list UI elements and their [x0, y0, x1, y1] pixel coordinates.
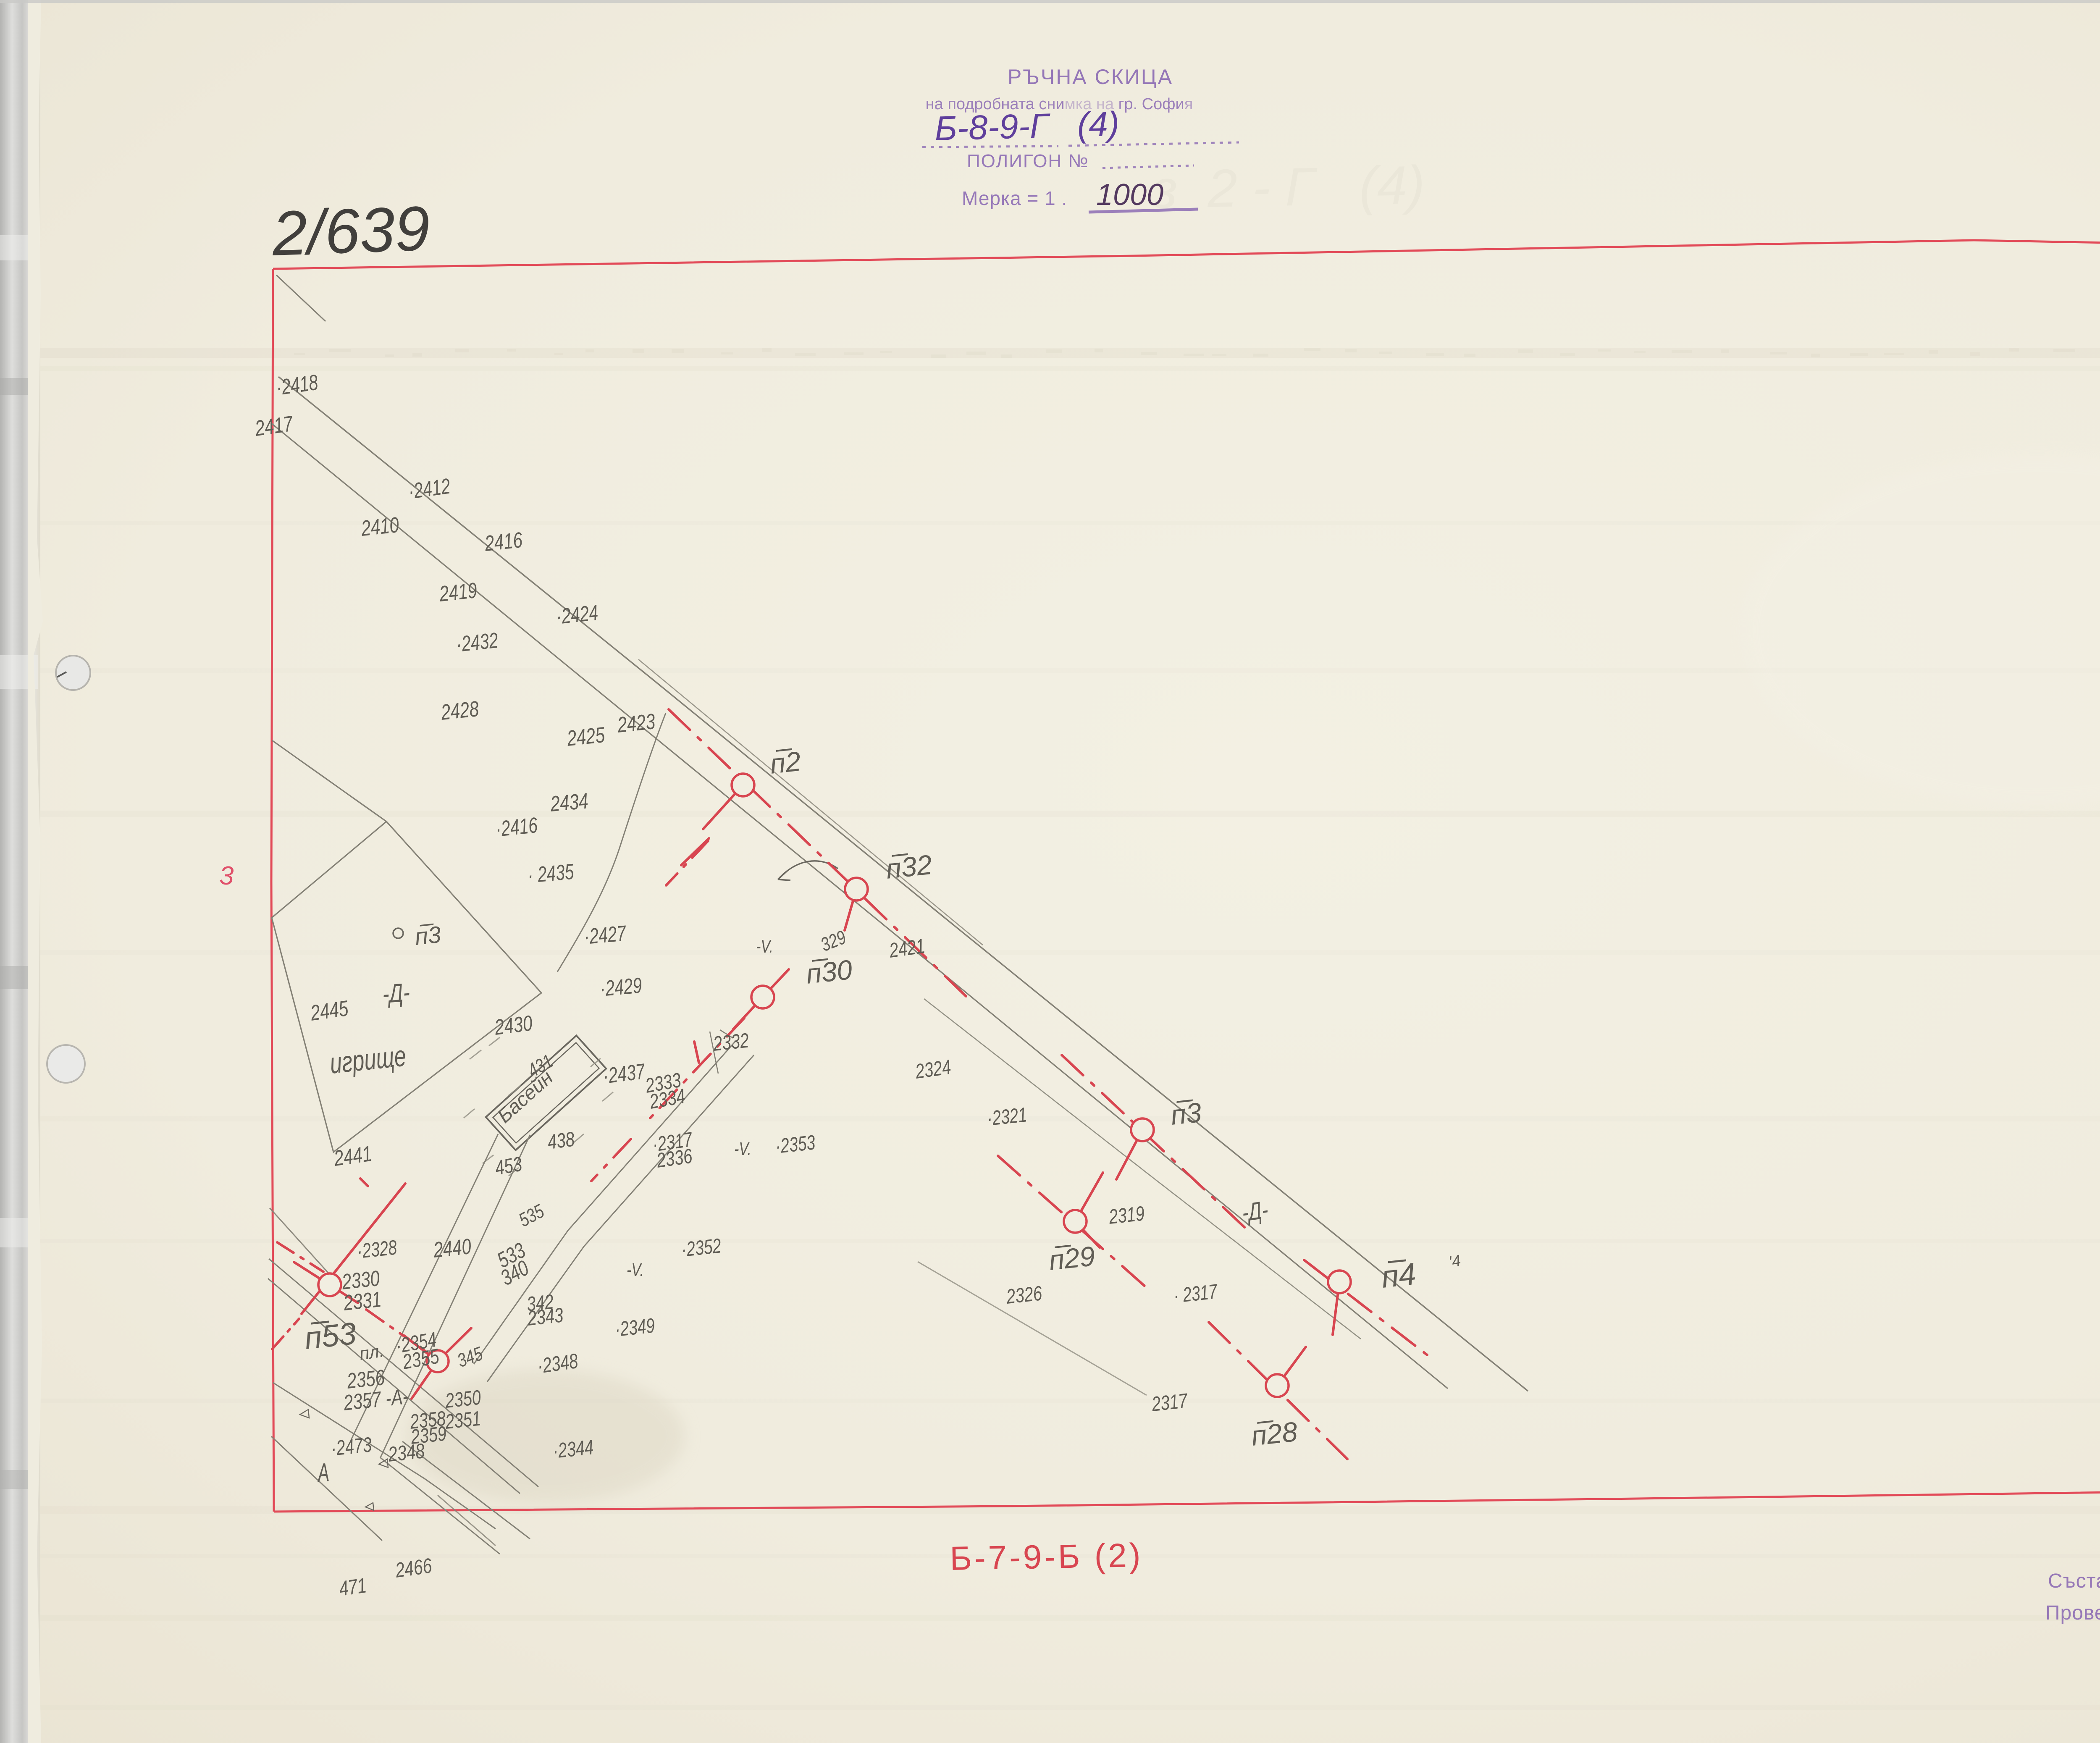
svg-text:·2427: ·2427: [583, 921, 627, 949]
svg-text:·2344: ·2344: [551, 1435, 594, 1463]
svg-text:·2416: ·2416: [494, 813, 539, 842]
svg-text:·2437: ·2437: [601, 1059, 647, 1089]
svg-text:Проверил:: Проверил:: [2045, 1602, 2100, 1624]
svg-text:Б-8-9-Г (4): Б-8-9-Г (4): [934, 105, 1120, 148]
svg-text:2/639: 2/639: [270, 193, 431, 269]
svg-text:2348: 2348: [387, 1439, 426, 1466]
svg-text:2326: 2326: [1005, 1282, 1044, 1308]
svg-text:2343: 2343: [526, 1304, 564, 1330]
svg-text:·2328: ·2328: [356, 1236, 398, 1263]
svg-text:453: 453: [493, 1153, 524, 1180]
svg-text:-V.: -V.: [756, 936, 773, 957]
svg-text:438: 438: [546, 1128, 576, 1154]
svg-text:2410: 2410: [360, 513, 400, 541]
svg-text:·2432: ·2432: [455, 628, 499, 657]
svg-text:·2321: ·2321: [986, 1103, 1028, 1130]
svg-text:3: 3: [219, 861, 234, 890]
svg-text:2419: 2419: [438, 578, 478, 606]
svg-text:·2352: ·2352: [680, 1234, 722, 1261]
svg-text:2416: 2416: [483, 528, 523, 556]
svg-text:п̅2: п̅2: [769, 745, 802, 780]
svg-text:2319: 2319: [1108, 1202, 1146, 1228]
svg-text:2428: 2428: [439, 697, 480, 725]
svg-text:·2473: ·2473: [330, 1433, 373, 1460]
svg-text:ПОЛИГОН №: ПОЛИГОН №: [967, 151, 1089, 171]
svg-text:-Д-: -Д-: [381, 978, 411, 1009]
svg-text:2317: 2317: [1150, 1389, 1189, 1416]
svg-text:п̅53: п̅53: [303, 1316, 358, 1356]
svg-text:п̅32: п̅32: [885, 849, 934, 885]
svg-text:· 2435: · 2435: [527, 860, 575, 888]
svg-text:п̅28: п̅28: [1250, 1416, 1299, 1452]
svg-text:п̅3: п̅3: [1169, 1097, 1203, 1131]
svg-text:п̅4: п̅4: [1380, 1256, 1417, 1294]
svg-text:2425: 2425: [565, 723, 606, 751]
svg-text:·2424: ·2424: [555, 601, 599, 629]
svg-text:-Д-: -Д-: [1240, 1196, 1270, 1227]
svg-text:п̅30: п̅30: [805, 954, 854, 990]
svg-text:·2353: ·2353: [774, 1131, 816, 1158]
svg-text:2430: 2430: [493, 1011, 534, 1040]
svg-text:-V.: -V.: [627, 1260, 644, 1280]
svg-text:пл.: пл.: [358, 1341, 385, 1364]
svg-text:2331: 2331: [342, 1287, 382, 1315]
svg-text:1000: 1000: [1096, 178, 1163, 212]
svg-text:471: 471: [338, 1573, 368, 1601]
svg-text:РЪЧНА СКИЦА: РЪЧНА СКИЦА: [1008, 65, 1173, 89]
svg-text:п̅3: п̅3: [414, 921, 442, 950]
svg-text:·2349: ·2349: [614, 1314, 656, 1341]
svg-text:· 2317: · 2317: [1173, 1280, 1219, 1307]
svg-text:Мерка = 1 .: Мерка = 1 .: [962, 187, 1067, 209]
svg-text:2434: 2434: [549, 789, 589, 816]
svg-text:2423: 2423: [616, 709, 656, 738]
svg-text:2351: 2351: [444, 1407, 482, 1433]
svg-text:Съставил:: Съставил:: [2048, 1570, 2100, 1592]
svg-text:п̅29: п̅29: [1047, 1240, 1097, 1276]
svg-text:2440: 2440: [432, 1234, 472, 1263]
svg-text:·2429: ·2429: [599, 973, 643, 1001]
svg-text:2332: 2332: [712, 1029, 750, 1055]
svg-text:-V.: -V.: [734, 1139, 751, 1159]
svg-text:Б-7-9-Б (2): Б-7-9-Б (2): [950, 1536, 1143, 1577]
